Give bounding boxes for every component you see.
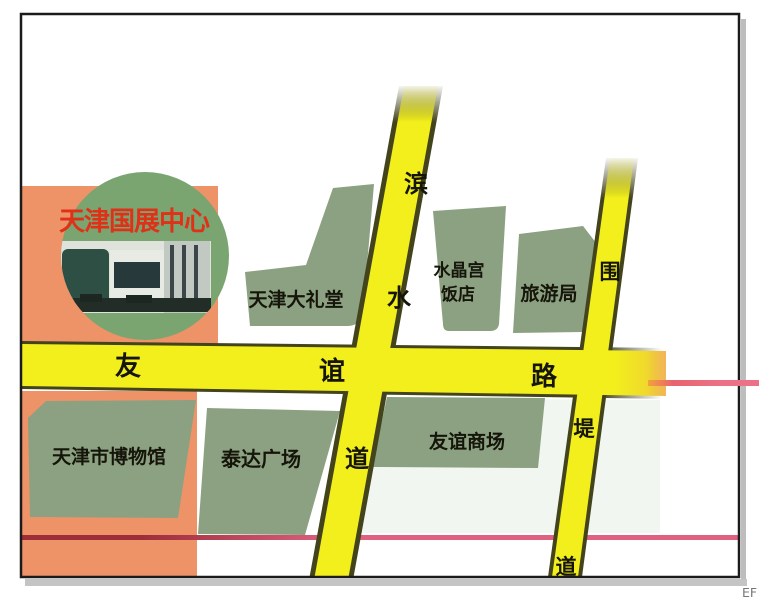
road-char: 堤 [574, 417, 596, 441]
lower-boundary-line [20, 535, 740, 540]
road-char: 滨 [404, 170, 428, 198]
label-tourism-bureau: 旅游局 [520, 282, 577, 305]
road-char: 路 [531, 361, 558, 392]
road-char: 水 [387, 284, 412, 312]
label-teda-plaza: 泰达广场 [220, 447, 301, 471]
road-char: 围 [600, 260, 621, 284]
photo-window-band [114, 262, 160, 288]
label-crystal-palace-line1: 水晶宫 [434, 260, 485, 281]
frame-shadow-bottom [25, 579, 747, 586]
label-crystal-palace-line2: 饭店 [440, 284, 475, 305]
label-museum: 天津市博物馆 [52, 445, 166, 468]
corner-watermark: EF [742, 585, 757, 600]
road-char: 谊 [319, 356, 345, 387]
frame-shadow-right [741, 19, 746, 582]
road-char: 道 [556, 555, 577, 579]
inset-title: 天津国展中心 [59, 207, 210, 237]
road-continuation-line [648, 380, 759, 386]
road-char: 友 [115, 352, 141, 382]
label-friendship-mall: 友谊商场 [429, 430, 505, 453]
exhibition-center-building-photo [61, 241, 211, 313]
road-char: 道 [345, 445, 369, 473]
tianjin-exhibition-center-map: 天津国展中心 友 谊 路 滨 水 道 围 堤 道 [0, 0, 759, 600]
label-grand-hall: 天津大礼堂 [248, 288, 343, 311]
map-page: 天津国展中心 友 谊 路 滨 水 道 围 堤 道 [0, 0, 759, 600]
